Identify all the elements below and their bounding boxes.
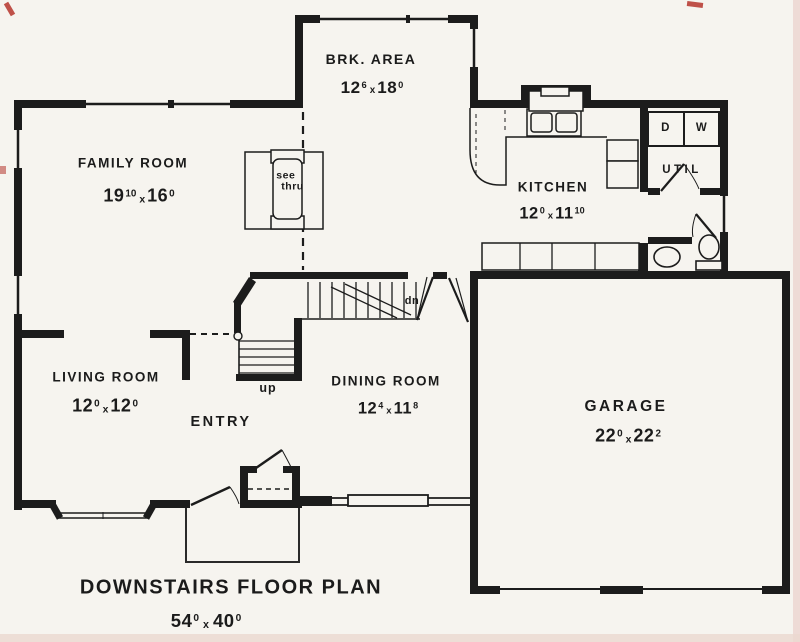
front-door: [191, 487, 239, 505]
toilet-bowl-icon: [699, 235, 719, 259]
scan-edge-bottom: [0, 634, 800, 642]
living-room-label: LIVING ROOM: [52, 370, 159, 385]
kitchen-dims: 120x1110: [519, 205, 584, 224]
fireplace-label: see thru: [276, 171, 303, 194]
kitchen-sink: [527, 109, 581, 136]
stairs-up-label: up: [259, 381, 276, 395]
basement-door: [417, 277, 433, 320]
family-room-label: FAMILY ROOM: [78, 156, 188, 171]
staircase: [234, 282, 420, 374]
dryer-label: D: [661, 122, 671, 134]
living-room-dims: 120x120: [72, 396, 138, 417]
plan-overall-dims: 540x400: [171, 610, 241, 632]
plan-title: DOWNSTAIRS FLOOR PLAN: [80, 577, 382, 600]
stairs-down-label: dn: [405, 295, 419, 307]
bay-window: [51, 502, 155, 519]
washer-label: W: [696, 122, 708, 134]
range-nook: [521, 85, 591, 111]
patio-door: [332, 495, 470, 506]
scan-edge-right: [793, 0, 800, 642]
family-room-dims: 1910x160: [103, 186, 174, 207]
entry-porch: [185, 508, 300, 563]
bath-door: [692, 214, 716, 238]
dining-room-label: DINING ROOM: [331, 374, 441, 389]
washer-dryer-unit: [648, 112, 719, 146]
scan-artifact-left: [0, 166, 6, 174]
entry-label: ENTRY: [190, 414, 251, 430]
toilet-base-icon: [696, 261, 722, 270]
garage-dims: 220x222: [595, 426, 661, 447]
dining-room-dims: 124x118: [358, 400, 418, 419]
garage-label: GARAGE: [584, 398, 667, 416]
util-label: UTIL: [662, 164, 702, 176]
brk-area-label: BRK. AREA: [326, 51, 417, 67]
floor-plan-page: BRK. AREA 126x180 FAMILY ROOM 1910x160 K…: [0, 0, 800, 642]
brk-area-dims: 126x180: [341, 78, 404, 98]
sink-icon: [654, 247, 680, 267]
kitchen-label: KITCHEN: [518, 180, 589, 195]
garage-entry-door: [449, 278, 468, 322]
